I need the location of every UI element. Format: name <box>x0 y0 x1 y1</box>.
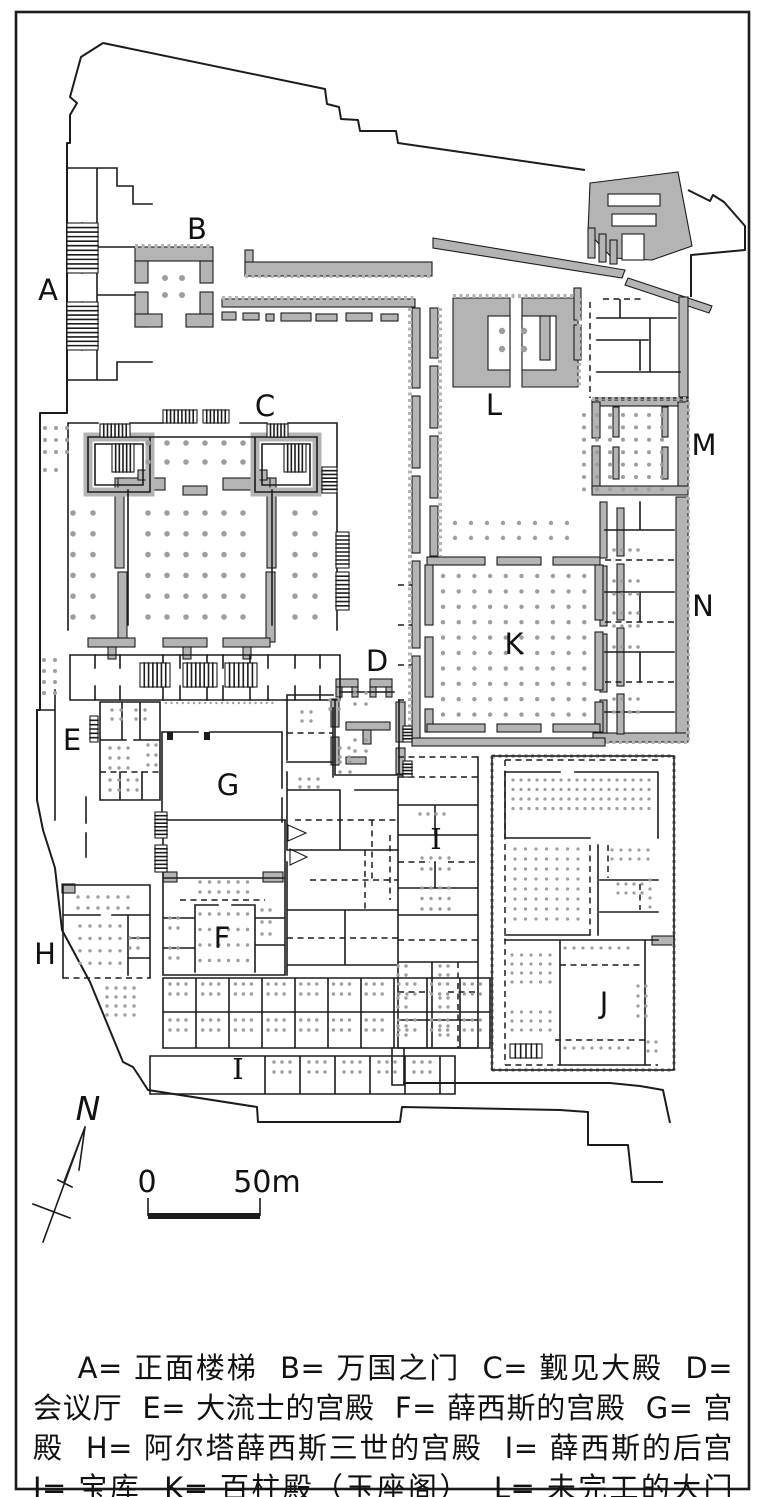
persepolis-plan-page: A B C D E F G H I I J K L M N N 0 50m A=… <box>0 0 766 1497</box>
scale-start: 0 <box>137 1165 156 1200</box>
label-treasury: J <box>598 986 609 1020</box>
label-gate-of-all-nations: B <box>187 212 207 246</box>
label-barracks: N <box>692 589 714 623</box>
plan-letter-labels: A B C D E F G H I I J K L M N <box>34 212 716 1086</box>
label-front-stairway: A <box>38 273 58 307</box>
north-arrow-icon: N <box>33 1089 100 1242</box>
north-label: N <box>76 1089 101 1128</box>
scale-end: 50m <box>233 1165 300 1200</box>
label-unfinished-gate: L <box>486 388 502 422</box>
label-palace-of-xerxes: F <box>214 921 231 955</box>
label-palace-artaxerxes-iii: H <box>34 937 56 971</box>
label-harem: I <box>430 822 441 856</box>
plan-structures <box>37 43 745 1182</box>
label-palace-g: G <box>217 768 239 802</box>
label-palace-of-darius: E <box>63 723 81 757</box>
scale-bar: 0 50m <box>137 1165 300 1216</box>
legend-text: A= 正面楼梯 B= 万国之门 C= 觐见大殿 D= 会议厅 E= 大流士的宫殿… <box>33 1351 752 1497</box>
legend: A= 正面楼梯 B= 万国之门 C= 觐见大殿 D= 会议厅 E= 大流士的宫殿… <box>33 1308 733 1497</box>
label-audience-hall: C <box>255 389 275 423</box>
label-harem-south: I <box>232 1052 243 1086</box>
label-council-hall: D <box>366 644 388 678</box>
label-hundred-column-hall: K <box>504 627 524 661</box>
label-hall-32-columns: M <box>691 428 716 462</box>
site-plan-drawing: A B C D E F G H I I J K L M N N 0 50m <box>0 0 766 1497</box>
